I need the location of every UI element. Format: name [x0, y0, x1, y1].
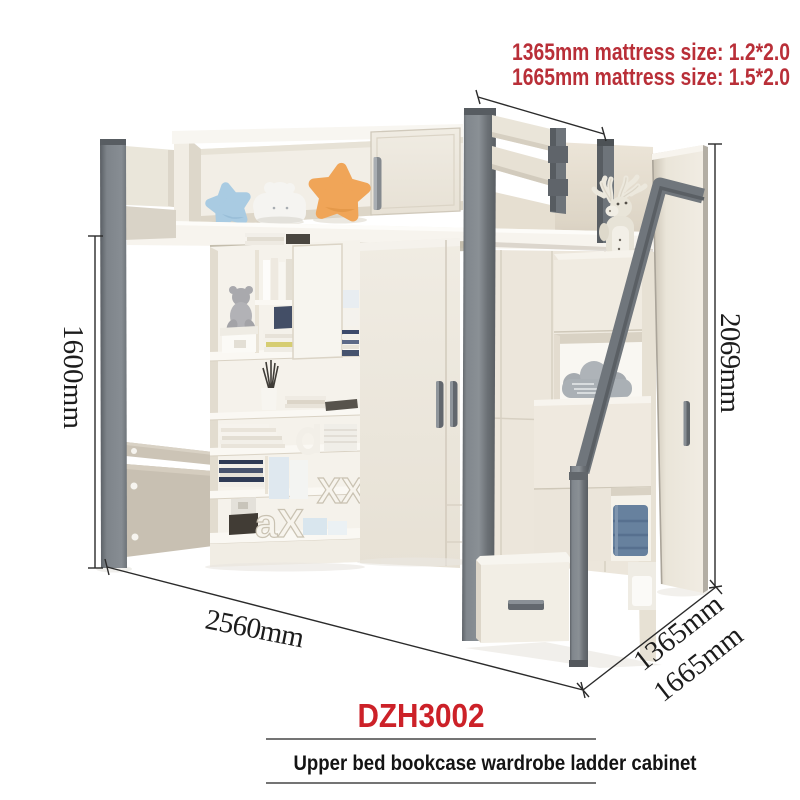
svg-text:XX: XX	[317, 470, 365, 511]
svg-text:1365mm mattress size: 1.2*2.0: 1365mm mattress size: 1.2*2.0	[512, 39, 790, 66]
svg-text:aX: aX	[255, 502, 304, 546]
svg-text:1665mm mattress size: 1.5*2.0: 1665mm mattress size: 1.5*2.0	[512, 64, 790, 91]
svg-text:2069mm: 2069mm	[714, 313, 746, 413]
svg-text:1600mm: 1600mm	[57, 325, 89, 429]
svg-text:DZH3002: DZH3002	[358, 697, 485, 734]
svg-text:Upper bed bookcase wardrobe la: Upper bed bookcase wardrobe ladder cabin…	[294, 751, 697, 775]
